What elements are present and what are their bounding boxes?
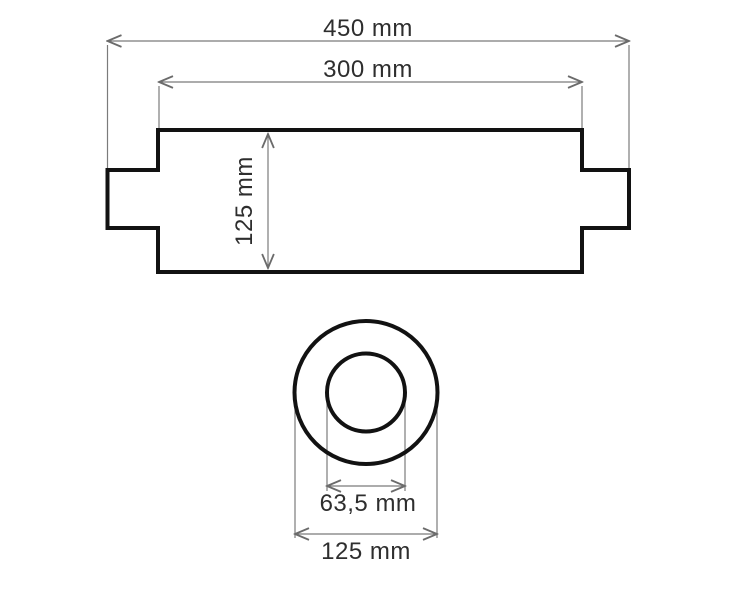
inlet-pipe-circle [327,354,405,432]
end-view: 63,5 mm 125 mm [295,321,438,565]
body-length-label: 300 mm [323,56,413,83]
outer-shell-circle [295,321,438,464]
muffler-body-outline [108,130,630,272]
overall-length-label: 450 mm [323,15,413,42]
outer-diameter-label: 125 mm [321,538,411,565]
muffler-technical-drawing: 450 mm 300 mm 125 mm 63,5 mm [0,0,733,600]
side-view: 450 mm 300 mm 125 mm [108,15,630,272]
technical-drawing-page: 450 mm 300 mm 125 mm 63,5 mm [0,0,733,600]
body-height-label: 125 mm [231,156,258,246]
inner-diameter-label: 63,5 mm [320,490,417,517]
